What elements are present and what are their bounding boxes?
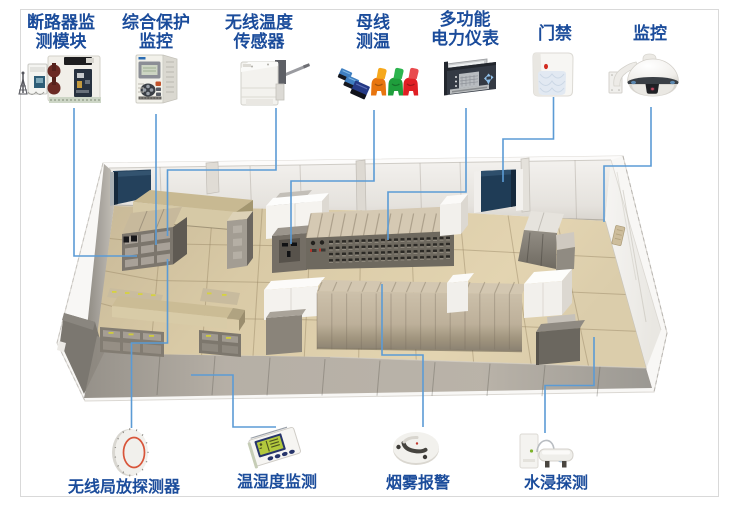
svg-text:监控: 监控 [633,23,667,43]
svg-text:传感器: 传感器 [233,31,286,51]
svg-text:烟雾报警: 烟雾报警 [386,473,450,492]
svg-text:测模块: 测模块 [36,31,88,51]
svg-text:多功能: 多功能 [440,9,491,29]
svg-text:温湿度监测: 温湿度监测 [236,472,317,491]
svg-text:无线温度: 无线温度 [224,12,294,32]
svg-text:无线局放探测器: 无线局放探测器 [67,477,181,496]
svg-text:测温: 测温 [356,31,390,51]
svg-text:断路器监: 断路器监 [27,12,95,32]
svg-text:电力仪表: 电力仪表 [431,28,500,48]
svg-text:母线: 母线 [356,12,390,32]
svg-text:门禁: 门禁 [538,23,572,43]
svg-text:综合保护: 综合保护 [122,12,190,32]
svg-text:监控: 监控 [139,31,173,51]
svg-text:水浸探测: 水浸探测 [524,473,588,492]
